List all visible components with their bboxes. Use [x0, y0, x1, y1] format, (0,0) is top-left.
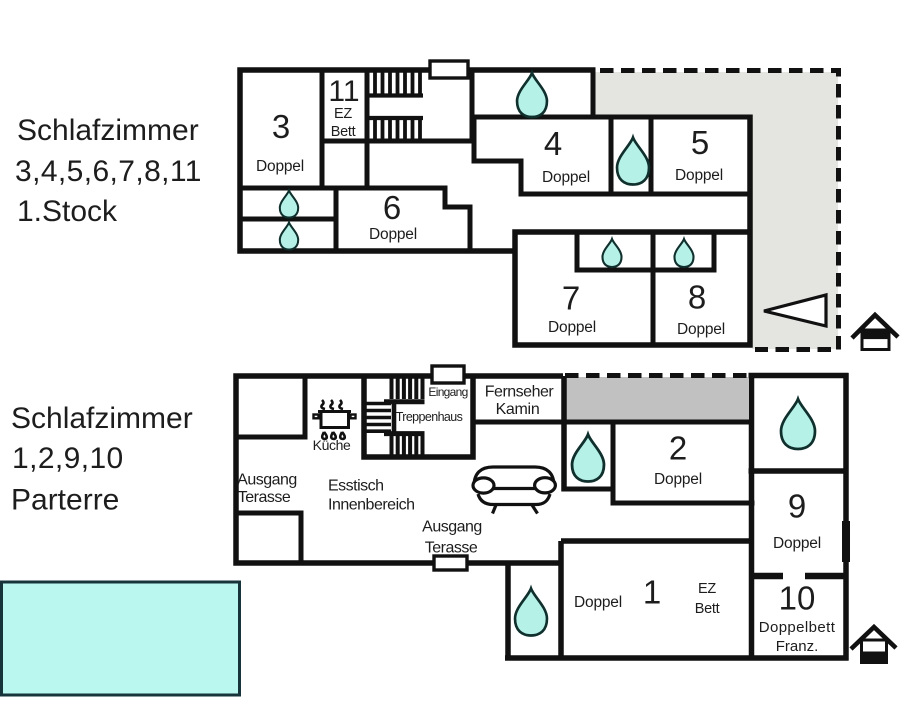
svg-text:Doppel: Doppel — [654, 471, 702, 488]
svg-text:Ausgang: Ausgang — [237, 472, 297, 489]
svg-text:Küche: Küche — [313, 437, 351, 453]
svg-text:1.Stock: 1.Stock — [17, 195, 118, 228]
svg-text:Kamin: Kamin — [496, 401, 540, 418]
svg-text:5: 5 — [691, 124, 709, 161]
svg-text:Bett: Bett — [331, 124, 356, 140]
svg-text:8: 8 — [688, 279, 706, 316]
svg-text:Schlafzimmer: Schlafzimmer — [11, 402, 193, 435]
svg-text:Bett: Bett — [695, 601, 720, 617]
svg-text:Innenbereich: Innenbereich — [328, 497, 415, 514]
svg-text:3,4,5,6,7,8,11: 3,4,5,6,7,8,11 — [15, 155, 202, 188]
svg-text:Doppelbett: Doppelbett — [759, 619, 836, 636]
svg-text:Doppel: Doppel — [542, 169, 590, 186]
svg-text:Schlafzimmer: Schlafzimmer — [17, 114, 199, 147]
svg-text:Doppel: Doppel — [574, 594, 622, 611]
svg-text:Doppel: Doppel — [675, 167, 723, 184]
svg-text:Treppenhaus: Treppenhaus — [396, 410, 463, 424]
svg-text:Esstisch: Esstisch — [328, 478, 384, 495]
svg-text:1: 1 — [643, 574, 661, 611]
svg-text:Doppel: Doppel — [256, 158, 304, 175]
svg-text:Fernseher: Fernseher — [485, 384, 555, 401]
svg-text:EZ: EZ — [698, 581, 716, 597]
svg-text:Doppel: Doppel — [369, 226, 417, 243]
svg-text:10: 10 — [779, 580, 816, 617]
svg-text:7: 7 — [562, 280, 580, 317]
svg-text:3: 3 — [272, 108, 290, 145]
svg-text:Eingang: Eingang — [428, 385, 467, 399]
svg-text:9: 9 — [788, 488, 806, 525]
svg-text:1,2,9,10: 1,2,9,10 — [12, 442, 124, 475]
svg-text:Terasse: Terasse — [425, 540, 478, 557]
svg-text:6: 6 — [383, 189, 401, 226]
svg-text:Doppel: Doppel — [677, 321, 725, 338]
svg-text:Ausgang: Ausgang — [422, 519, 482, 536]
svg-text:4: 4 — [544, 125, 562, 162]
svg-text:EZ: EZ — [334, 106, 352, 122]
svg-text:Doppel: Doppel — [548, 319, 596, 336]
svg-text:Doppel: Doppel — [773, 535, 821, 552]
svg-text:Terasse: Terasse — [238, 489, 291, 506]
svg-text:Franz.: Franz. — [776, 638, 819, 655]
svg-text:11: 11 — [328, 75, 359, 108]
svg-text:2: 2 — [669, 430, 687, 467]
svg-text:Parterre: Parterre — [11, 484, 119, 517]
